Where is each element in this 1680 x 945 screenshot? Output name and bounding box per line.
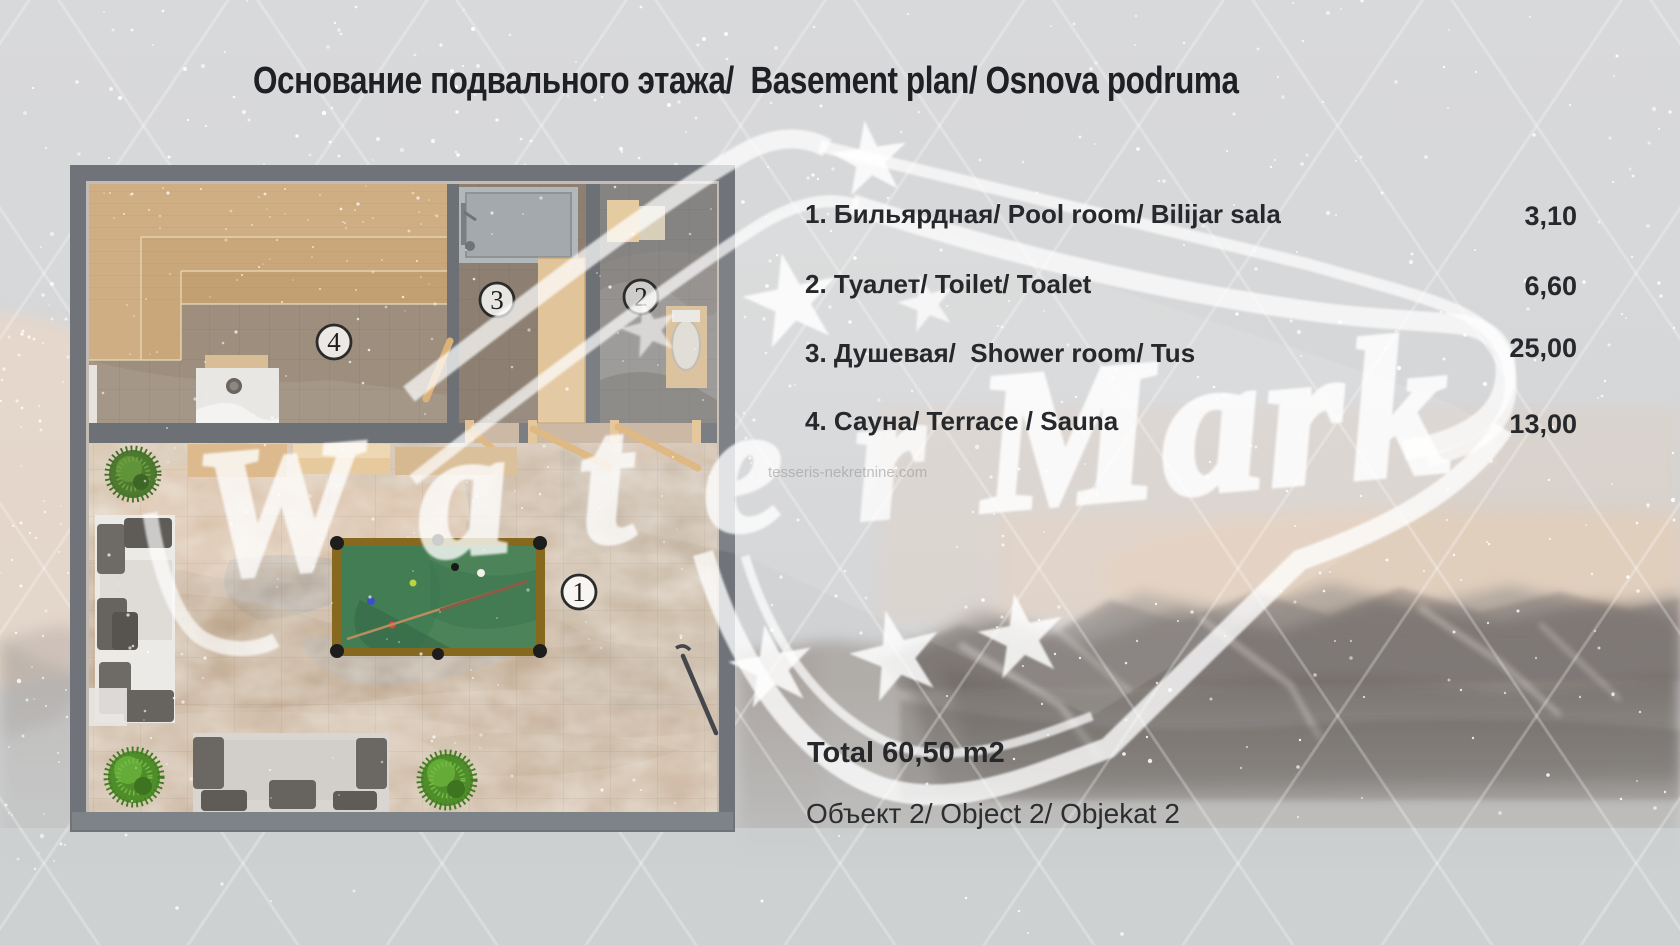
svg-text:tesseris-nekretnine.com: tesseris-nekretnine.com	[768, 464, 927, 481]
